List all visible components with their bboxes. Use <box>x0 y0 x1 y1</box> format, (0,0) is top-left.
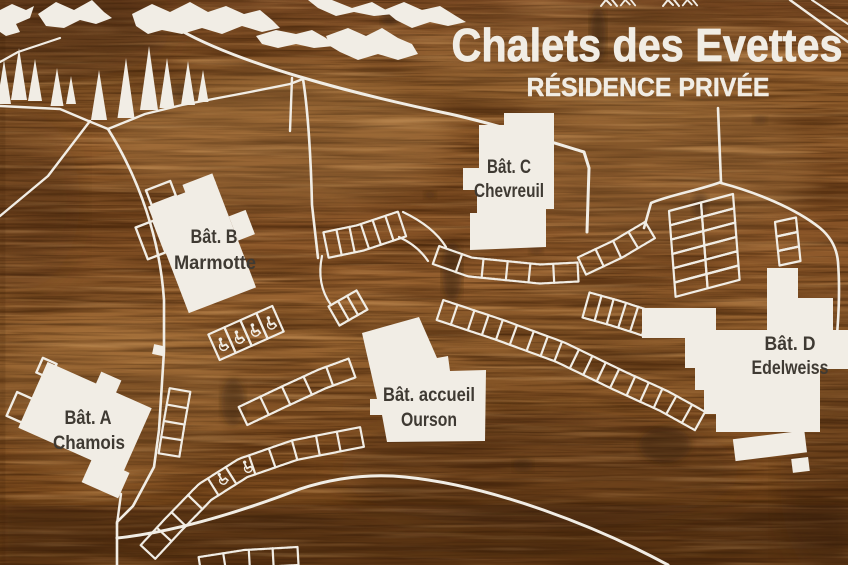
svg-text:Bât. B: Bât. B <box>191 227 238 248</box>
svg-text:Bât. accueil: Bât. accueil <box>383 385 475 406</box>
svg-text:Ourson: Ourson <box>401 410 457 431</box>
svg-text:Chalets des Evettes: Chalets des Evettes <box>452 19 843 71</box>
svg-text:Bât. C: Bât. C <box>487 157 531 178</box>
svg-text:Bât. A: Bât. A <box>65 408 112 429</box>
svg-text:Bât. D: Bât. D <box>765 334 816 355</box>
svg-text:Chevreuil: Chevreuil <box>474 181 544 202</box>
svg-text:RÉSIDENCE PRIVÉE: RÉSIDENCE PRIVÉE <box>527 72 770 102</box>
svg-text:Edelweiss: Edelweiss <box>752 358 829 379</box>
svg-text:Chamois: Chamois <box>53 433 125 454</box>
svg-text:Marmotte: Marmotte <box>174 253 256 274</box>
